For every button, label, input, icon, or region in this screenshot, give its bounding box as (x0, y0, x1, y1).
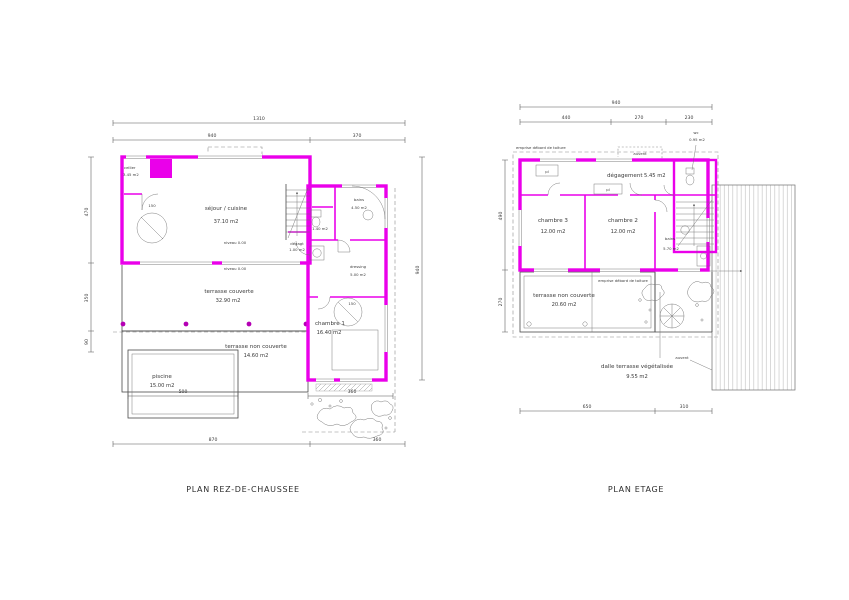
gf-dim-top-right: 370 (353, 133, 362, 139)
gf-dim-top-left: 940 (208, 133, 217, 139)
gf-terraces (122, 265, 308, 418)
uf-chambre3-name: chambre 3 (538, 218, 568, 224)
gf-piscine-name: piscine (152, 374, 172, 380)
ground-floor-title: PLAN REZ-DE-CHAUSSEE (186, 485, 300, 494)
gf-dim-pool-side: 360 (348, 389, 357, 395)
gf-dim-pool: 500 (179, 389, 188, 395)
uf-emprise-b: emprise débord de toiture (598, 278, 648, 283)
gf-dim-bottom-left: 870 (209, 437, 218, 443)
gf-dressing-name: dressing (350, 264, 367, 269)
gf-chambre1-name: chambre 1 (315, 321, 345, 327)
uf-wc-name: wc (693, 130, 698, 135)
gf-vegetation (311, 398, 393, 438)
uf-placard-a: pl (545, 169, 548, 174)
gf-cellier-area: 3.45 m2 (123, 172, 139, 177)
gf-dim-left-bot: 90 (84, 339, 90, 345)
gf-terrasse-nc-area: 14.60 m2 (244, 353, 269, 359)
uf-auvent-a: auvent (633, 151, 647, 156)
uf-emprise-a: emprise débord de toiture (516, 145, 566, 150)
gf-bains-name: bains (354, 197, 364, 202)
gf-dim-right: 940 (415, 266, 421, 275)
gf-terrasse-nc-name: terrasse non couverte (225, 344, 287, 350)
uf-auvent-b: auvent (675, 355, 689, 360)
gf-degagt-area: 1.00 m2 (289, 247, 305, 252)
drawing-sheet: cellier 3.45 m2 séjour / cuisine 37.10 m… (0, 0, 849, 600)
gf-dim-bottom-right: 360 (373, 437, 382, 443)
gf-wc-area: 1.40 m2 (312, 226, 328, 231)
uf-dim-w3: 230 (685, 115, 694, 121)
uf-vegetation (639, 282, 714, 328)
gf-room-labels: cellier 3.45 m2 séjour / cuisine 37.10 m… (123, 165, 367, 389)
ground-floor-plan: cellier 3.45 m2 séjour / cuisine 37.10 m… (84, 116, 425, 494)
uf-side-slab (704, 185, 795, 390)
gf-fixtures (137, 186, 385, 370)
uf-dim-left-top: 490 (498, 212, 504, 221)
uf-dim-w1: 440 (562, 115, 571, 121)
floor-plans-svg: cellier 3.45 m2 séjour / cuisine 37.10 m… (0, 0, 849, 600)
gf-dressing-area: 5.00 m2 (350, 272, 366, 277)
gf-dim-left-top: 470 (84, 208, 90, 217)
gf-sejour-area: 37.10 m2 (214, 219, 239, 225)
uf-terrasse-area: 20.60 m2 (552, 302, 577, 308)
gf-sejour-name: séjour / cuisine (205, 205, 248, 212)
gf-circle-dim-a: 150 (148, 203, 156, 208)
gf-niveau-b: niveau 0.00 (224, 266, 247, 271)
gf-dim-total: 1310 (253, 116, 265, 122)
uf-dim-total: 940 (612, 100, 621, 106)
uf-wc-area: 0.95 m2 (689, 137, 705, 142)
uf-chambre2-area: 12.00 m2 (611, 229, 636, 235)
uf-dim-left-bot: 270 (498, 298, 504, 307)
uf-dim-bottom-left: 650 (583, 404, 592, 410)
gf-terrasse-couverte-area: 32.90 m2 (216, 298, 241, 304)
gf-degagt-name: dégagt (290, 241, 304, 246)
uf-degagement-area: 5.45 m2 (644, 173, 666, 179)
uf-dalle-area: 9.55 m2 (626, 374, 648, 380)
uf-dim-bottom-right: 310 (680, 404, 689, 410)
uf-degagement-name: dégagement (607, 172, 643, 179)
gf-bains-area: 4.50 m2 (351, 205, 367, 210)
uf-dim-w2: 270 (635, 115, 644, 121)
uf-bains-name: bains (665, 236, 675, 241)
gf-terrace-posts (121, 322, 309, 327)
gf-cellier-name: cellier (124, 165, 136, 170)
gf-circle-dim-b: 150 (348, 301, 356, 306)
uf-chambre2-name: chambre 2 (608, 218, 638, 224)
uf-chambre3-area: 12.00 m2 (541, 229, 566, 235)
uf-placard-b: pl (606, 187, 609, 192)
gf-dim-left-mid: 350 (84, 294, 90, 303)
uf-terrasse-name: terrasse non couverte (533, 293, 595, 299)
gf-niveau-a: niveau 0.00 (224, 240, 247, 245)
gf-chambre1-area: 16.40 m2 (317, 330, 342, 336)
uf-room-labels: dégagement 5.45 m2 wc 0.95 m2 chambre 3 … (516, 130, 705, 380)
uf-dalle-name: dalle terrasse végétalisée (601, 363, 674, 370)
upper-floor-plan: dégagement 5.45 m2 wc 0.95 m2 chambre 3 … (498, 100, 795, 494)
upper-floor-title: PLAN ETAGE (608, 485, 664, 494)
uf-bains-area: 5.70 m2 (663, 246, 679, 251)
gf-piscine-area: 15.00 m2 (150, 383, 175, 389)
gf-terrasse-couverte-name: terrasse couverte (204, 289, 254, 295)
